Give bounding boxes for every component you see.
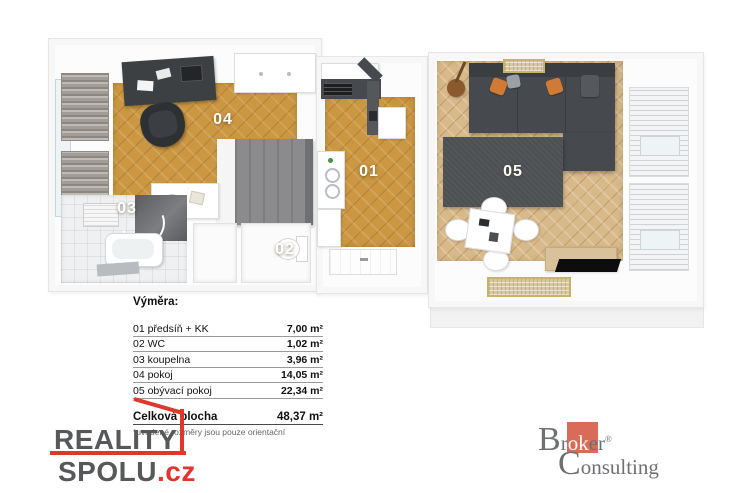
plan-base-shadow xyxy=(430,306,704,328)
door-handle xyxy=(360,258,368,261)
room-label-03: 03 xyxy=(110,200,144,218)
window-glass xyxy=(640,136,680,156)
pillow-gray xyxy=(506,74,521,89)
sofa-chaise xyxy=(563,133,615,171)
row-value: 14,05 m² xyxy=(281,369,323,381)
legend-row-04: 04 pokoj 14,05 m² xyxy=(133,368,323,384)
rs-tld-cz: .cz xyxy=(157,456,196,487)
bc-rest: onsulting xyxy=(581,455,659,479)
room-label-01: 01 xyxy=(352,163,386,181)
sofa xyxy=(469,63,615,133)
curtain-left xyxy=(61,73,109,141)
room-label-05: 05 xyxy=(496,163,530,181)
rs-house-roof-line xyxy=(133,397,183,415)
reality-spolu-logo: REALITY SPOLU.cz xyxy=(38,392,203,492)
floor-plan: 01 02 03 04 05 xyxy=(0,0,740,340)
legend-title: Výměra: xyxy=(133,296,323,308)
legend-row-02: 02 WC 1,02 m² xyxy=(133,337,323,353)
sink-bowl xyxy=(325,184,340,199)
wardrobe-handle xyxy=(259,72,263,76)
pillow-orange xyxy=(545,77,564,96)
wardrobe xyxy=(234,53,316,93)
window-right-top xyxy=(629,87,689,177)
broker-consulting-logo: Broker® Consulting xyxy=(536,418,711,482)
paper xyxy=(137,80,154,91)
legend-row-03: 03 koupelna 3,96 m² xyxy=(133,352,323,368)
row-value: 7,00 m² xyxy=(287,323,323,335)
row-value: 1,02 m² xyxy=(287,338,323,350)
row-value: 3,96 m² xyxy=(287,354,323,366)
sink-unit xyxy=(317,151,345,209)
small-rug-top xyxy=(503,59,545,73)
right-wing xyxy=(428,52,704,308)
sink-bowl xyxy=(325,168,340,183)
wardrobe-handle xyxy=(287,72,291,76)
table-item xyxy=(489,232,499,242)
row-label: 01 předsíň + KK xyxy=(133,323,209,335)
doormat xyxy=(487,277,571,297)
hall-cabinet xyxy=(317,209,341,247)
bed-headboard xyxy=(305,139,313,225)
rs-word-spolu: SPOLU.cz xyxy=(58,458,196,486)
bc-cap-c: C xyxy=(558,445,581,482)
rs-word-reality: REALITY xyxy=(54,426,177,454)
closet xyxy=(193,223,237,283)
rs-spolu-text: SPOLU xyxy=(58,456,157,487)
desk xyxy=(122,56,217,106)
bath-mat xyxy=(97,262,140,277)
cooktop xyxy=(324,83,352,96)
bed-duvet xyxy=(235,139,305,225)
room-label-02: 02 xyxy=(268,241,302,259)
row-label: 02 WC xyxy=(133,338,165,350)
window-glass xyxy=(640,230,680,250)
coffee-machine xyxy=(369,111,377,121)
paper xyxy=(156,68,172,80)
room-label-04: 04 xyxy=(206,111,240,129)
row-label: 03 koupelna xyxy=(133,354,190,366)
dining-chair xyxy=(513,219,539,241)
total-value: 48,37 m² xyxy=(277,411,323,423)
legend-rows: 01 předsíň + KK 7,00 m² 02 WC 1,02 m² 03… xyxy=(133,321,323,399)
laptop xyxy=(180,65,203,82)
bathtub-basin xyxy=(112,239,154,259)
row-label: 04 pokoj xyxy=(133,369,173,381)
window-right-bottom xyxy=(629,183,689,271)
cushion-dark xyxy=(581,75,599,97)
bc-word-consulting: Consulting xyxy=(558,444,659,485)
chair-seat xyxy=(146,108,179,139)
decor-frame xyxy=(189,191,205,206)
plant-dot xyxy=(328,158,333,163)
entrance-door xyxy=(329,249,397,275)
bc-registered-mark: ® xyxy=(605,434,612,444)
table-item xyxy=(479,218,490,226)
rs-house-wall-line xyxy=(180,409,184,454)
row-value: 22,34 m² xyxy=(281,385,323,397)
sofa-seam xyxy=(565,77,566,133)
pillow-orange xyxy=(489,77,508,96)
legend-row-01: 01 předsíň + KK 7,00 m² xyxy=(133,321,323,337)
tv-screen xyxy=(555,259,621,272)
bed xyxy=(217,139,313,225)
kitchen-cabinet-block xyxy=(378,107,406,139)
dining-table xyxy=(464,208,515,254)
